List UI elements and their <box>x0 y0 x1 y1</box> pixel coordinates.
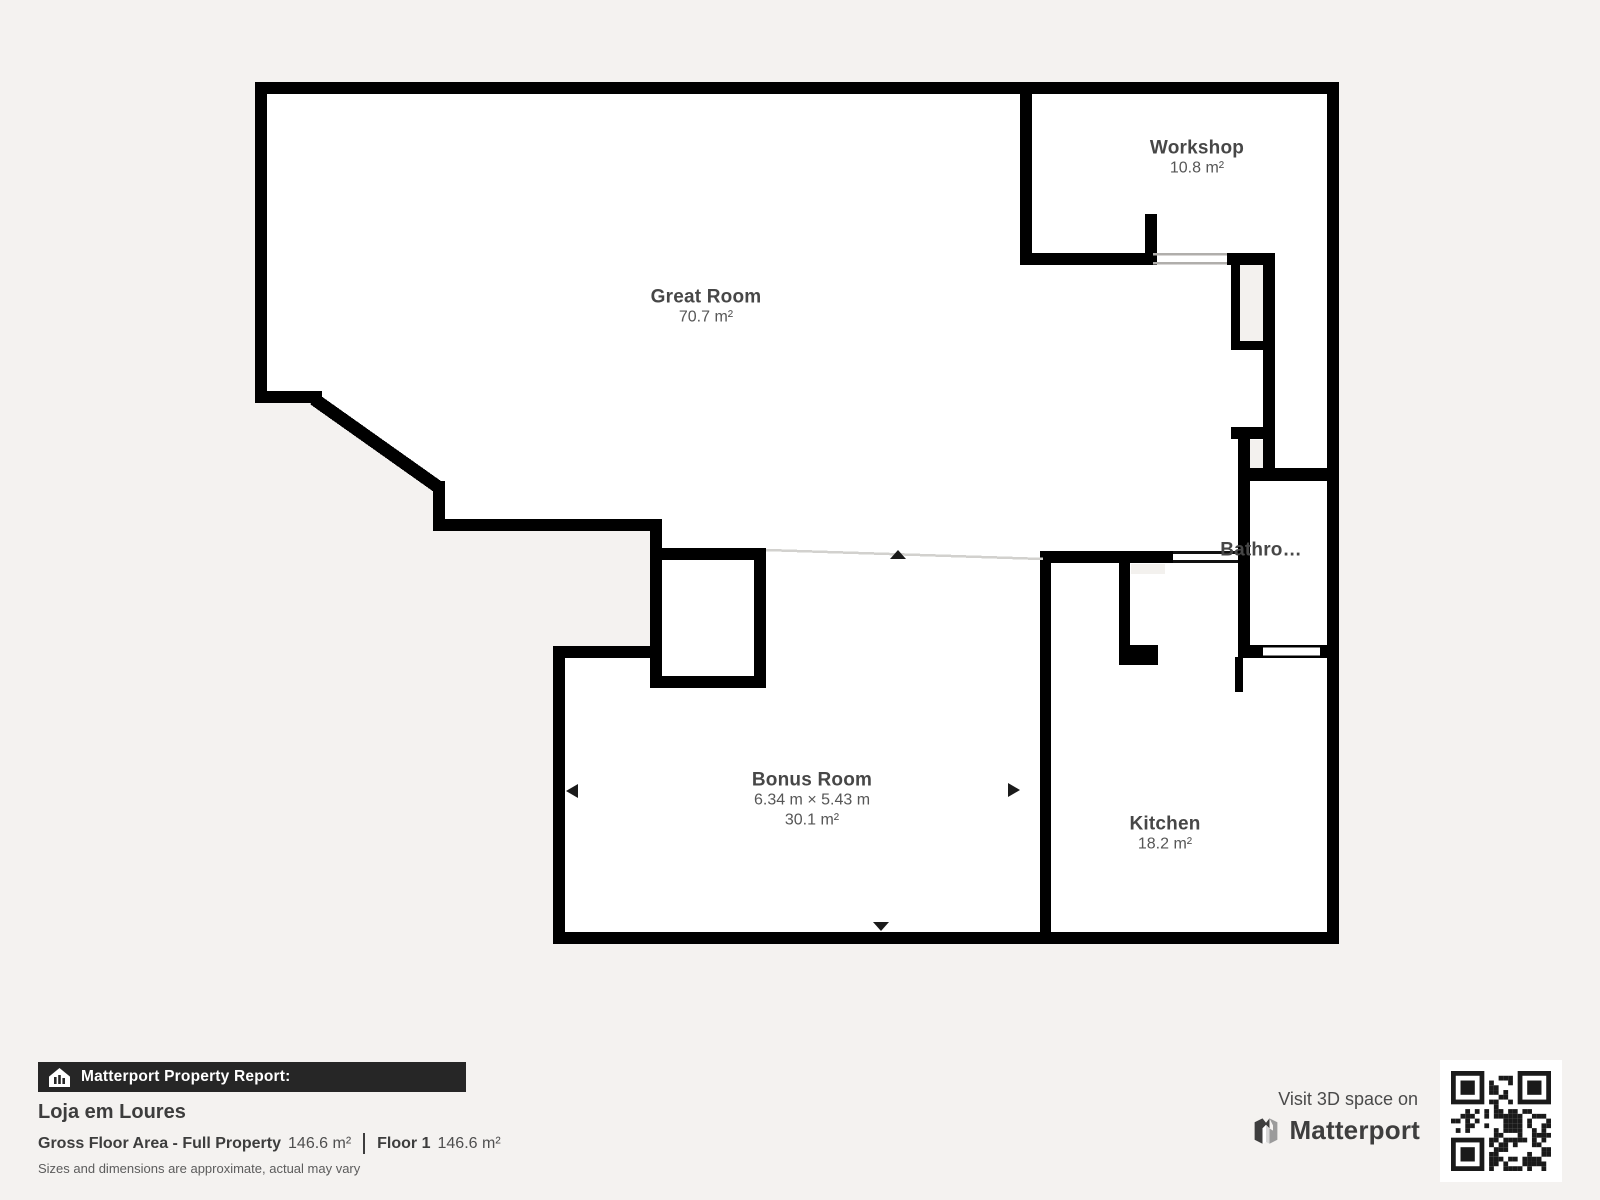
report-header-bar: Matterport Property Report: <box>38 1062 466 1092</box>
area-summary-line: Gross Floor Area - Full Property 146.6 m… <box>38 1133 501 1154</box>
room-area: 70.7 m² <box>651 308 762 327</box>
gross-floor-area-label: Gross Floor Area - Full Property <box>38 1135 281 1153</box>
room-name: Bonus Room <box>752 771 872 790</box>
matterport-wordmark: Matterport <box>1289 1115 1420 1146</box>
floor-plan <box>0 0 1600 1200</box>
property-name: Loja em Loures <box>38 1101 186 1124</box>
room-label-great-room: Great Room 70.7 m² <box>651 288 762 327</box>
room-name: Workshop <box>1150 139 1244 158</box>
vertical-divider <box>363 1133 365 1154</box>
visit-3d-text: Visit 3D space on <box>1278 1089 1418 1110</box>
room-label-bathroom: Bathro… <box>1220 541 1302 560</box>
room-label-workshop: Workshop 10.8 m² <box>1150 139 1244 178</box>
room-area: 10.8 m² <box>1150 159 1244 178</box>
room-name: Kitchen <box>1129 815 1200 834</box>
room-label-bonus-room: Bonus Room 6.34 m × 5.43 m 30.1 m² <box>752 771 872 830</box>
room-label-kitchen: Kitchen 18.2 m² <box>1129 815 1200 854</box>
room-name: Bathro… <box>1220 541 1302 560</box>
matterport-cta: Visit 3D space on Matterport <box>1252 1089 1420 1146</box>
room-dimensions: 6.34 m × 5.43 m <box>752 791 872 810</box>
qr-code[interactable] <box>1440 1060 1562 1182</box>
matterport-logo-icon <box>1252 1117 1280 1145</box>
room-name: Great Room <box>651 288 762 307</box>
floor-value: 146.6 m² <box>438 1135 501 1153</box>
gross-floor-area-value: 146.6 m² <box>288 1135 351 1153</box>
house-report-icon <box>49 1068 70 1087</box>
room-area: 30.1 m² <box>752 811 872 830</box>
page: { "floor_plan": { "rooms": [ { "name": "… <box>0 0 1600 1200</box>
floor-label: Floor 1 <box>377 1135 430 1153</box>
report-bar-label: Matterport Property Report: <box>81 1068 291 1086</box>
matterport-logo-link[interactable]: Matterport <box>1252 1115 1420 1146</box>
room-area: 18.2 m² <box>1129 835 1200 854</box>
disclaimer-text: Sizes and dimensions are approximate, ac… <box>38 1161 360 1176</box>
